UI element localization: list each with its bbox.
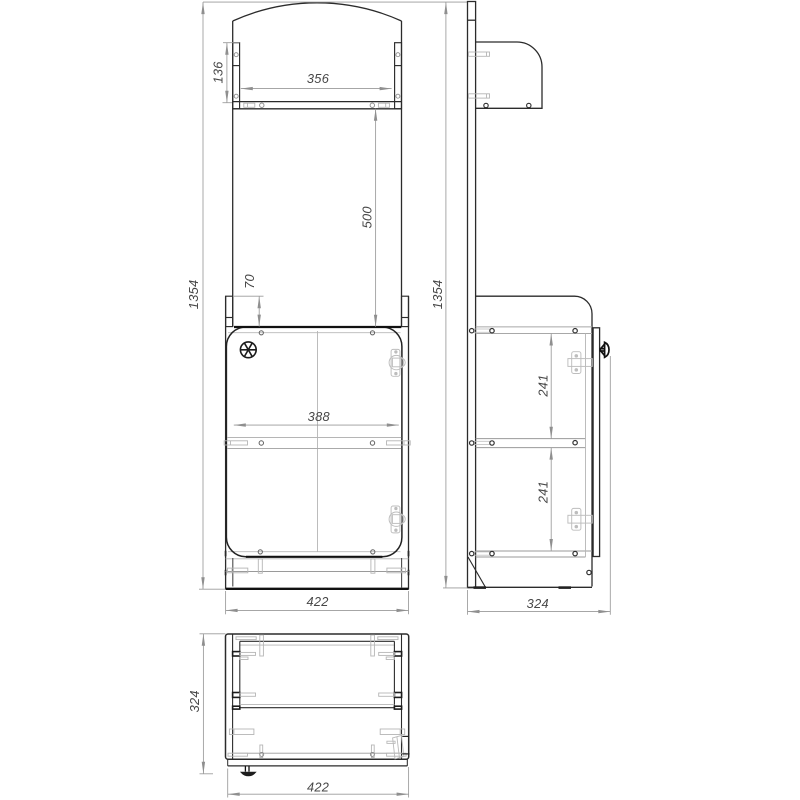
svg-text:500: 500	[360, 206, 375, 229]
svg-text:241: 241	[535, 374, 550, 397]
svg-text:241: 241	[535, 481, 550, 504]
svg-text:388: 388	[308, 409, 331, 424]
svg-text:70: 70	[242, 274, 257, 289]
svg-text:324: 324	[527, 596, 549, 611]
svg-text:136: 136	[210, 61, 225, 84]
svg-text:422: 422	[307, 779, 329, 794]
svg-text:324: 324	[187, 690, 202, 712]
svg-text:1354: 1354	[186, 280, 201, 310]
svg-text:1354: 1354	[430, 280, 445, 310]
svg-text:356: 356	[307, 71, 330, 86]
svg-text:422: 422	[306, 594, 328, 609]
